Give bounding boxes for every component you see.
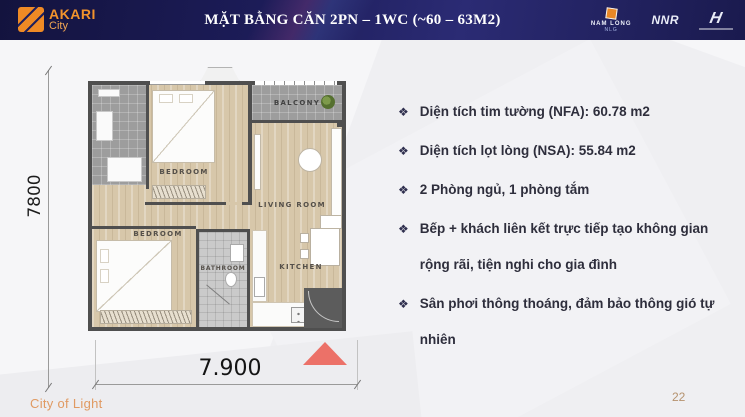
- page-number: 22: [672, 390, 685, 404]
- entrance-door: [304, 288, 342, 328]
- diamond-bullet-icon: ❖: [398, 286, 409, 358]
- brand-sub: City: [49, 21, 96, 32]
- feature-list: ❖ Diện tích tim tường (NFA): 60.78 m2 ❖ …: [398, 94, 724, 361]
- entry-corridor: [92, 85, 146, 185]
- diamond-bullet-icon: ❖: [398, 172, 409, 208]
- slide-title: MẶT BẰNG CĂN 2PN – 1WC (~60 – 63M2): [120, 0, 585, 40]
- floor-plan: BALCONY BEDROOM BEDROOM BATHROOM: [88, 62, 350, 334]
- coffee-table: [320, 215, 342, 229]
- interior-wall: [92, 226, 196, 229]
- bed: [152, 90, 215, 163]
- toilet: [225, 272, 237, 287]
- brand-name: AKARI: [49, 7, 96, 21]
- ac-duct: [200, 67, 240, 82]
- storage-cabinet: [107, 157, 142, 182]
- living-room-label: LIVING ROOM: [250, 201, 334, 209]
- kitchen-counter: [252, 302, 312, 327]
- kitchen-counter: [252, 230, 267, 302]
- washing-machine: [96, 111, 113, 141]
- bathroom-label: BATHROOM: [196, 265, 250, 272]
- wardrobe: [152, 185, 206, 199]
- hankyu-hanshin-logo: H: [699, 11, 733, 30]
- chair: [300, 249, 309, 259]
- feature-item: ❖ Diện tích tim tường (NFA): 60.78 m2: [398, 94, 724, 130]
- shoe-cabinet: [98, 89, 120, 97]
- dining-table: [310, 228, 340, 266]
- partner-logos: NAM LONG NLG NNR H: [591, 3, 733, 37]
- pillow: [100, 249, 109, 263]
- feature-item: ❖ Diện tích lọt lòng (NSA): 55.84 m2: [398, 133, 724, 169]
- pillow: [179, 94, 193, 103]
- shower-screen: [206, 284, 230, 304]
- height-dimension: 7800: [25, 167, 45, 225]
- diamond-bullet-icon: ❖: [398, 133, 409, 169]
- round-table: [298, 148, 322, 172]
- dimension-line-horizontal: [95, 384, 358, 385]
- header-bar: AKARI City MẶT BẰNG CĂN 2PN – 1WC (~60 –…: [0, 0, 745, 40]
- tv-cabinet: [254, 134, 261, 190]
- pillow: [100, 269, 109, 283]
- feature-item: ❖ Sân phơi thông thoáng, đảm bảo thông g…: [398, 286, 724, 358]
- bathroom-area: [196, 229, 250, 327]
- width-dimension: 7.900: [160, 356, 300, 381]
- hankyu-logo-text-line: [699, 28, 733, 30]
- balcony-label: BALCONY: [274, 99, 320, 107]
- kitchen-sink: [254, 277, 265, 297]
- feature-item: ❖ 2 Phòng ngủ, 1 phòng tắm: [398, 172, 724, 208]
- sink: [230, 244, 244, 262]
- bedroom-top-label: BEDROOM: [144, 168, 224, 176]
- akari-city-logo: AKARI City: [18, 7, 96, 32]
- pillow: [159, 94, 173, 103]
- feature-item: ❖ Bếp + khách liên kết trực tiếp tạo khô…: [398, 211, 724, 283]
- window: [150, 81, 205, 85]
- diamond-bullet-icon: ❖: [398, 94, 409, 130]
- interior-wall: [248, 85, 252, 205]
- namlong-cube-icon: [605, 7, 617, 19]
- kitchen-label: KITCHEN: [268, 263, 334, 271]
- balcony-area: BALCONY: [252, 85, 342, 121]
- project-tagline: City of Light: [30, 396, 103, 411]
- nnr-logo: NNR: [652, 13, 680, 27]
- akari-logo-icon: [18, 7, 44, 32]
- bedroom-bottom-label: BEDROOM: [122, 230, 194, 238]
- bed: [96, 240, 172, 312]
- dimension-line-vertical: [48, 70, 49, 388]
- chair: [300, 233, 309, 243]
- entrance-direction-marker: [303, 342, 347, 365]
- balcony-railing: [255, 81, 337, 85]
- diamond-bullet-icon: ❖: [398, 211, 409, 283]
- plant-icon: [321, 95, 335, 109]
- balcony-wall: [252, 120, 342, 123]
- door-opening: [226, 202, 242, 205]
- namlong-logo: NAM LONG NLG: [591, 8, 632, 33]
- wardrobe: [100, 310, 192, 324]
- slide: AKARI City MẶT BẰNG CĂN 2PN – 1WC (~60 –…: [0, 0, 745, 417]
